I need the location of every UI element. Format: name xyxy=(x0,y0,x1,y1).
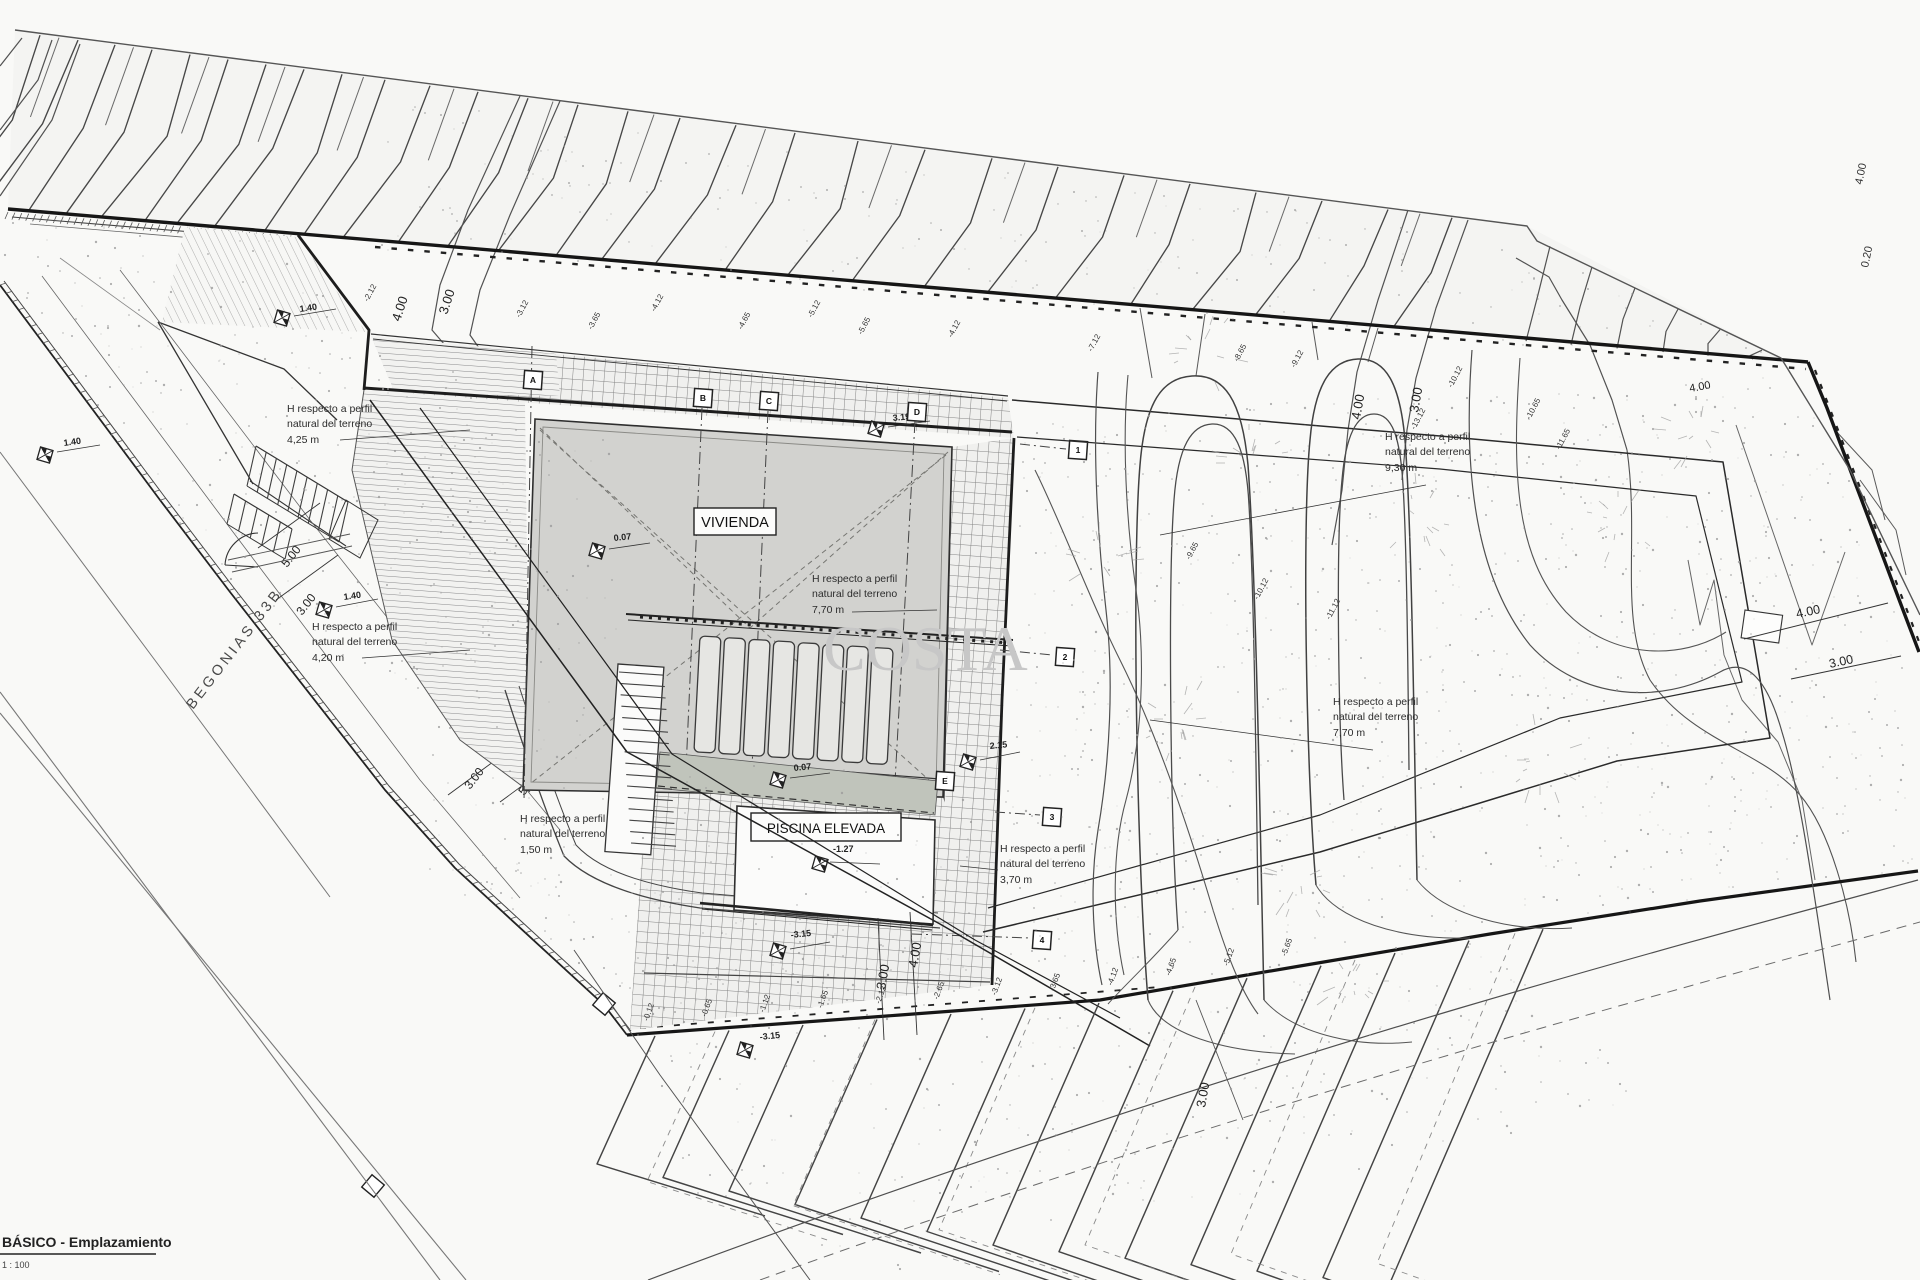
svg-text:H respecto a perfil: H respecto a perfil xyxy=(287,403,372,415)
svg-text:4,20 m: 4,20 m xyxy=(312,652,344,664)
svg-text:VIVIENDA: VIVIENDA xyxy=(701,515,769,531)
svg-text:C: C xyxy=(766,396,772,406)
svg-text:4: 4 xyxy=(1040,935,1045,945)
svg-text:9,30 m: 9,30 m xyxy=(1385,462,1417,474)
svg-text:BÁSICO - Emplazamiento: BÁSICO - Emplazamiento xyxy=(2,1234,172,1250)
svg-text:H respecto a perfil: H respecto a perfil xyxy=(1385,431,1470,443)
svg-text:3,70 m: 3,70 m xyxy=(1000,874,1032,886)
svg-text:2.15: 2.15 xyxy=(989,739,1007,751)
svg-text:4,25 m: 4,25 m xyxy=(287,434,319,446)
svg-text:D: D xyxy=(914,407,920,417)
svg-text:2: 2 xyxy=(1063,652,1068,662)
svg-text:-3.15: -3.15 xyxy=(790,928,811,940)
svg-text:0.07: 0.07 xyxy=(613,531,631,543)
svg-text:A: A xyxy=(530,375,536,385)
svg-text:H respecto a perfil: H respecto a perfil xyxy=(1333,696,1418,708)
svg-text:natural del terreno: natural del terreno xyxy=(812,588,897,600)
svg-text:E: E xyxy=(942,776,948,786)
svg-text:natural del terreno: natural del terreno xyxy=(1385,446,1470,458)
svg-text:-3.15: -3.15 xyxy=(759,1030,780,1042)
svg-text:0.07: 0.07 xyxy=(793,761,811,773)
svg-text:natural del terreno: natural del terreno xyxy=(520,828,605,840)
svg-text:natural del terreno: natural del terreno xyxy=(312,636,397,648)
svg-text:1: 1 xyxy=(1076,445,1081,455)
svg-text:natural del terreno: natural del terreno xyxy=(1333,711,1418,723)
svg-text:natural del terreno: natural del terreno xyxy=(287,418,372,430)
svg-text:1 : 100: 1 : 100 xyxy=(2,1260,30,1270)
svg-text:7,70 m: 7,70 m xyxy=(1333,727,1365,739)
svg-text:H respecto a perfil: H respecto a perfil xyxy=(312,621,397,633)
svg-text:H respecto a perfil: H respecto a perfil xyxy=(812,573,897,585)
svg-text:3: 3 xyxy=(1050,812,1055,822)
svg-text:B: B xyxy=(700,393,706,403)
svg-text:natural del terreno: natural del terreno xyxy=(1000,858,1085,870)
svg-text:H respecto a perfil: H respecto a perfil xyxy=(1000,843,1085,855)
svg-text:COSTA: COSTA xyxy=(823,613,1028,684)
svg-text:H respecto a perfil: H respecto a perfil xyxy=(520,813,605,825)
svg-text:-1.27: -1.27 xyxy=(833,844,854,854)
svg-text:1,50 m: 1,50 m xyxy=(520,844,552,856)
